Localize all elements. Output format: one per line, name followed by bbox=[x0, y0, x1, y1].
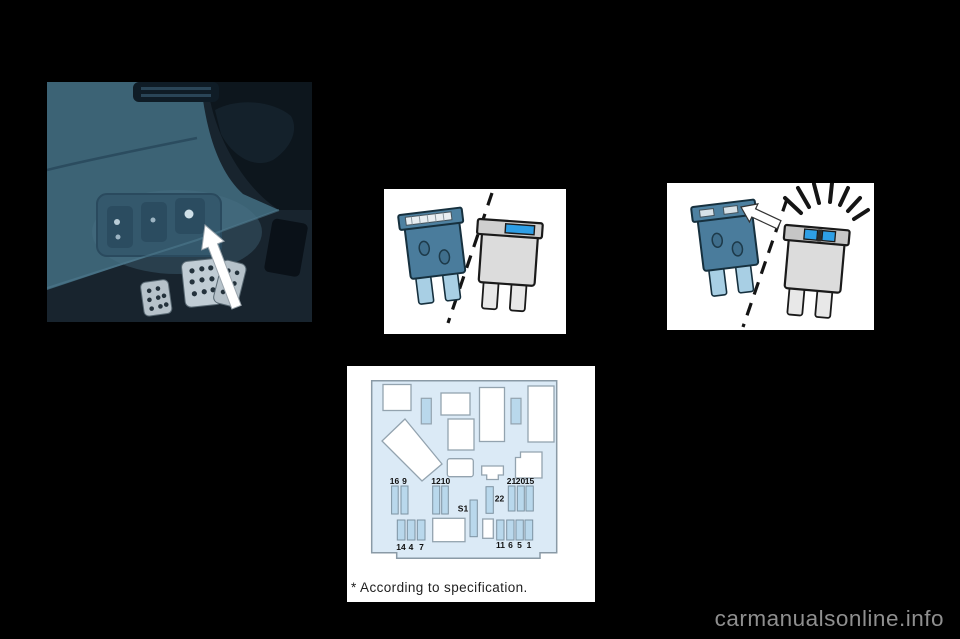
intact-fuse-element bbox=[505, 224, 535, 235]
blown-fuse-diagram bbox=[667, 183, 874, 330]
interior-photo-art bbox=[47, 82, 312, 322]
fuse-4 bbox=[407, 520, 415, 540]
label-6: 6 bbox=[508, 540, 513, 550]
good-fuse-art bbox=[384, 189, 566, 334]
fuse-11 bbox=[497, 520, 504, 540]
fuse-1 bbox=[525, 520, 533, 540]
fuse-12 bbox=[433, 486, 440, 514]
clutch-pedal bbox=[140, 279, 172, 317]
fuse-10 bbox=[442, 486, 449, 514]
interior-footwell-photo bbox=[47, 82, 312, 322]
broken-element-left bbox=[804, 229, 818, 240]
footnote: * According to specification. bbox=[351, 580, 591, 595]
fuse-6 bbox=[507, 520, 514, 540]
label-10: 10 bbox=[441, 476, 451, 486]
air-vent bbox=[133, 82, 219, 102]
fuse-21 bbox=[508, 486, 515, 511]
label-15: 15 bbox=[525, 476, 535, 486]
good-fuse-diagram bbox=[384, 189, 566, 334]
socket-s1 bbox=[470, 500, 477, 537]
label-9: 9 bbox=[402, 476, 407, 486]
label-14: 14 bbox=[396, 542, 406, 552]
label-11: 11 bbox=[496, 540, 505, 550]
fuse-9 bbox=[401, 486, 408, 514]
switch-left bbox=[107, 206, 133, 248]
label-5: 5 bbox=[517, 540, 522, 550]
label-22: 22 bbox=[495, 494, 505, 504]
fuse-15 bbox=[526, 486, 533, 511]
label-4: 4 bbox=[409, 542, 414, 552]
label-12: 12 bbox=[431, 476, 441, 486]
manual-page: 16 9 12 10 22 S1 21 20 15 14 4 7 11 6 5 … bbox=[0, 0, 960, 639]
fuse-14 bbox=[397, 520, 405, 540]
fuse-rear-view-icon bbox=[398, 207, 473, 305]
burst-rays-icon bbox=[785, 183, 868, 219]
fuse-22 bbox=[486, 487, 493, 514]
fuse-box-layout-diagram: 16 9 12 10 22 S1 21 20 15 14 4 7 11 6 5 … bbox=[347, 366, 595, 602]
watermark: carmanualsonline.info bbox=[715, 606, 944, 632]
label-1: 1 bbox=[527, 540, 532, 550]
blown-fuse-icon bbox=[777, 225, 850, 319]
fuse-20 bbox=[517, 486, 524, 511]
label-7: 7 bbox=[419, 542, 424, 552]
fuse-7 bbox=[417, 520, 425, 540]
fuse-front-view-icon bbox=[472, 219, 543, 312]
label-16: 16 bbox=[390, 476, 400, 486]
label-s1: S1 bbox=[458, 504, 469, 514]
blown-fuse-art bbox=[667, 183, 874, 330]
fuse-box-art: 16 9 12 10 22 S1 21 20 15 14 4 7 11 6 5 … bbox=[347, 366, 595, 566]
broken-element-right bbox=[822, 231, 836, 242]
fuse-5 bbox=[516, 520, 523, 540]
fuse-16 bbox=[392, 486, 399, 514]
